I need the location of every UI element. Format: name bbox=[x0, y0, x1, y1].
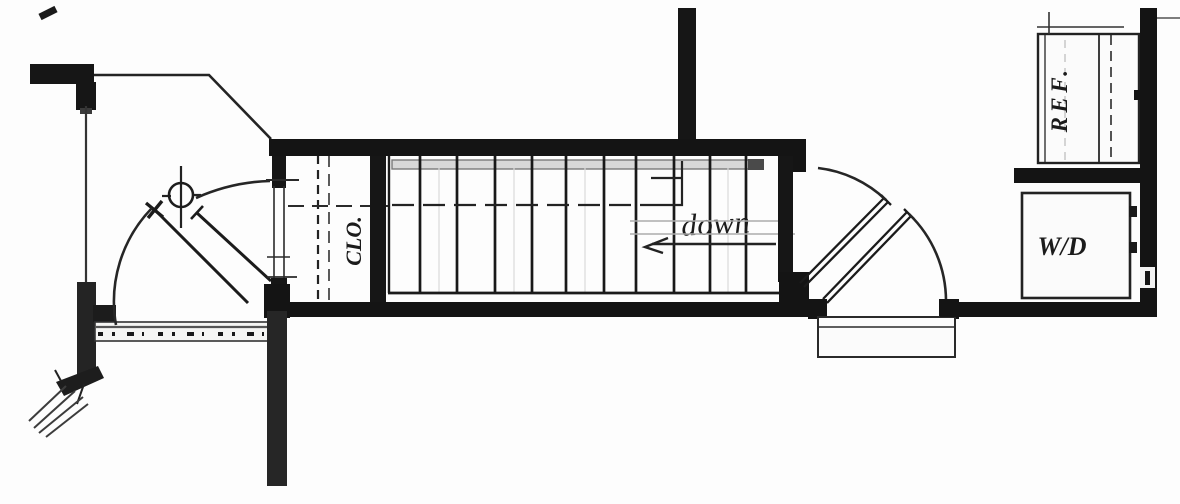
svg-text:W/D: W/D bbox=[1037, 232, 1086, 261]
svg-text:REF.: REF. bbox=[1047, 66, 1072, 134]
svg-text:down: down bbox=[680, 204, 751, 243]
svg-text:CLO.: CLO. bbox=[341, 216, 366, 266]
